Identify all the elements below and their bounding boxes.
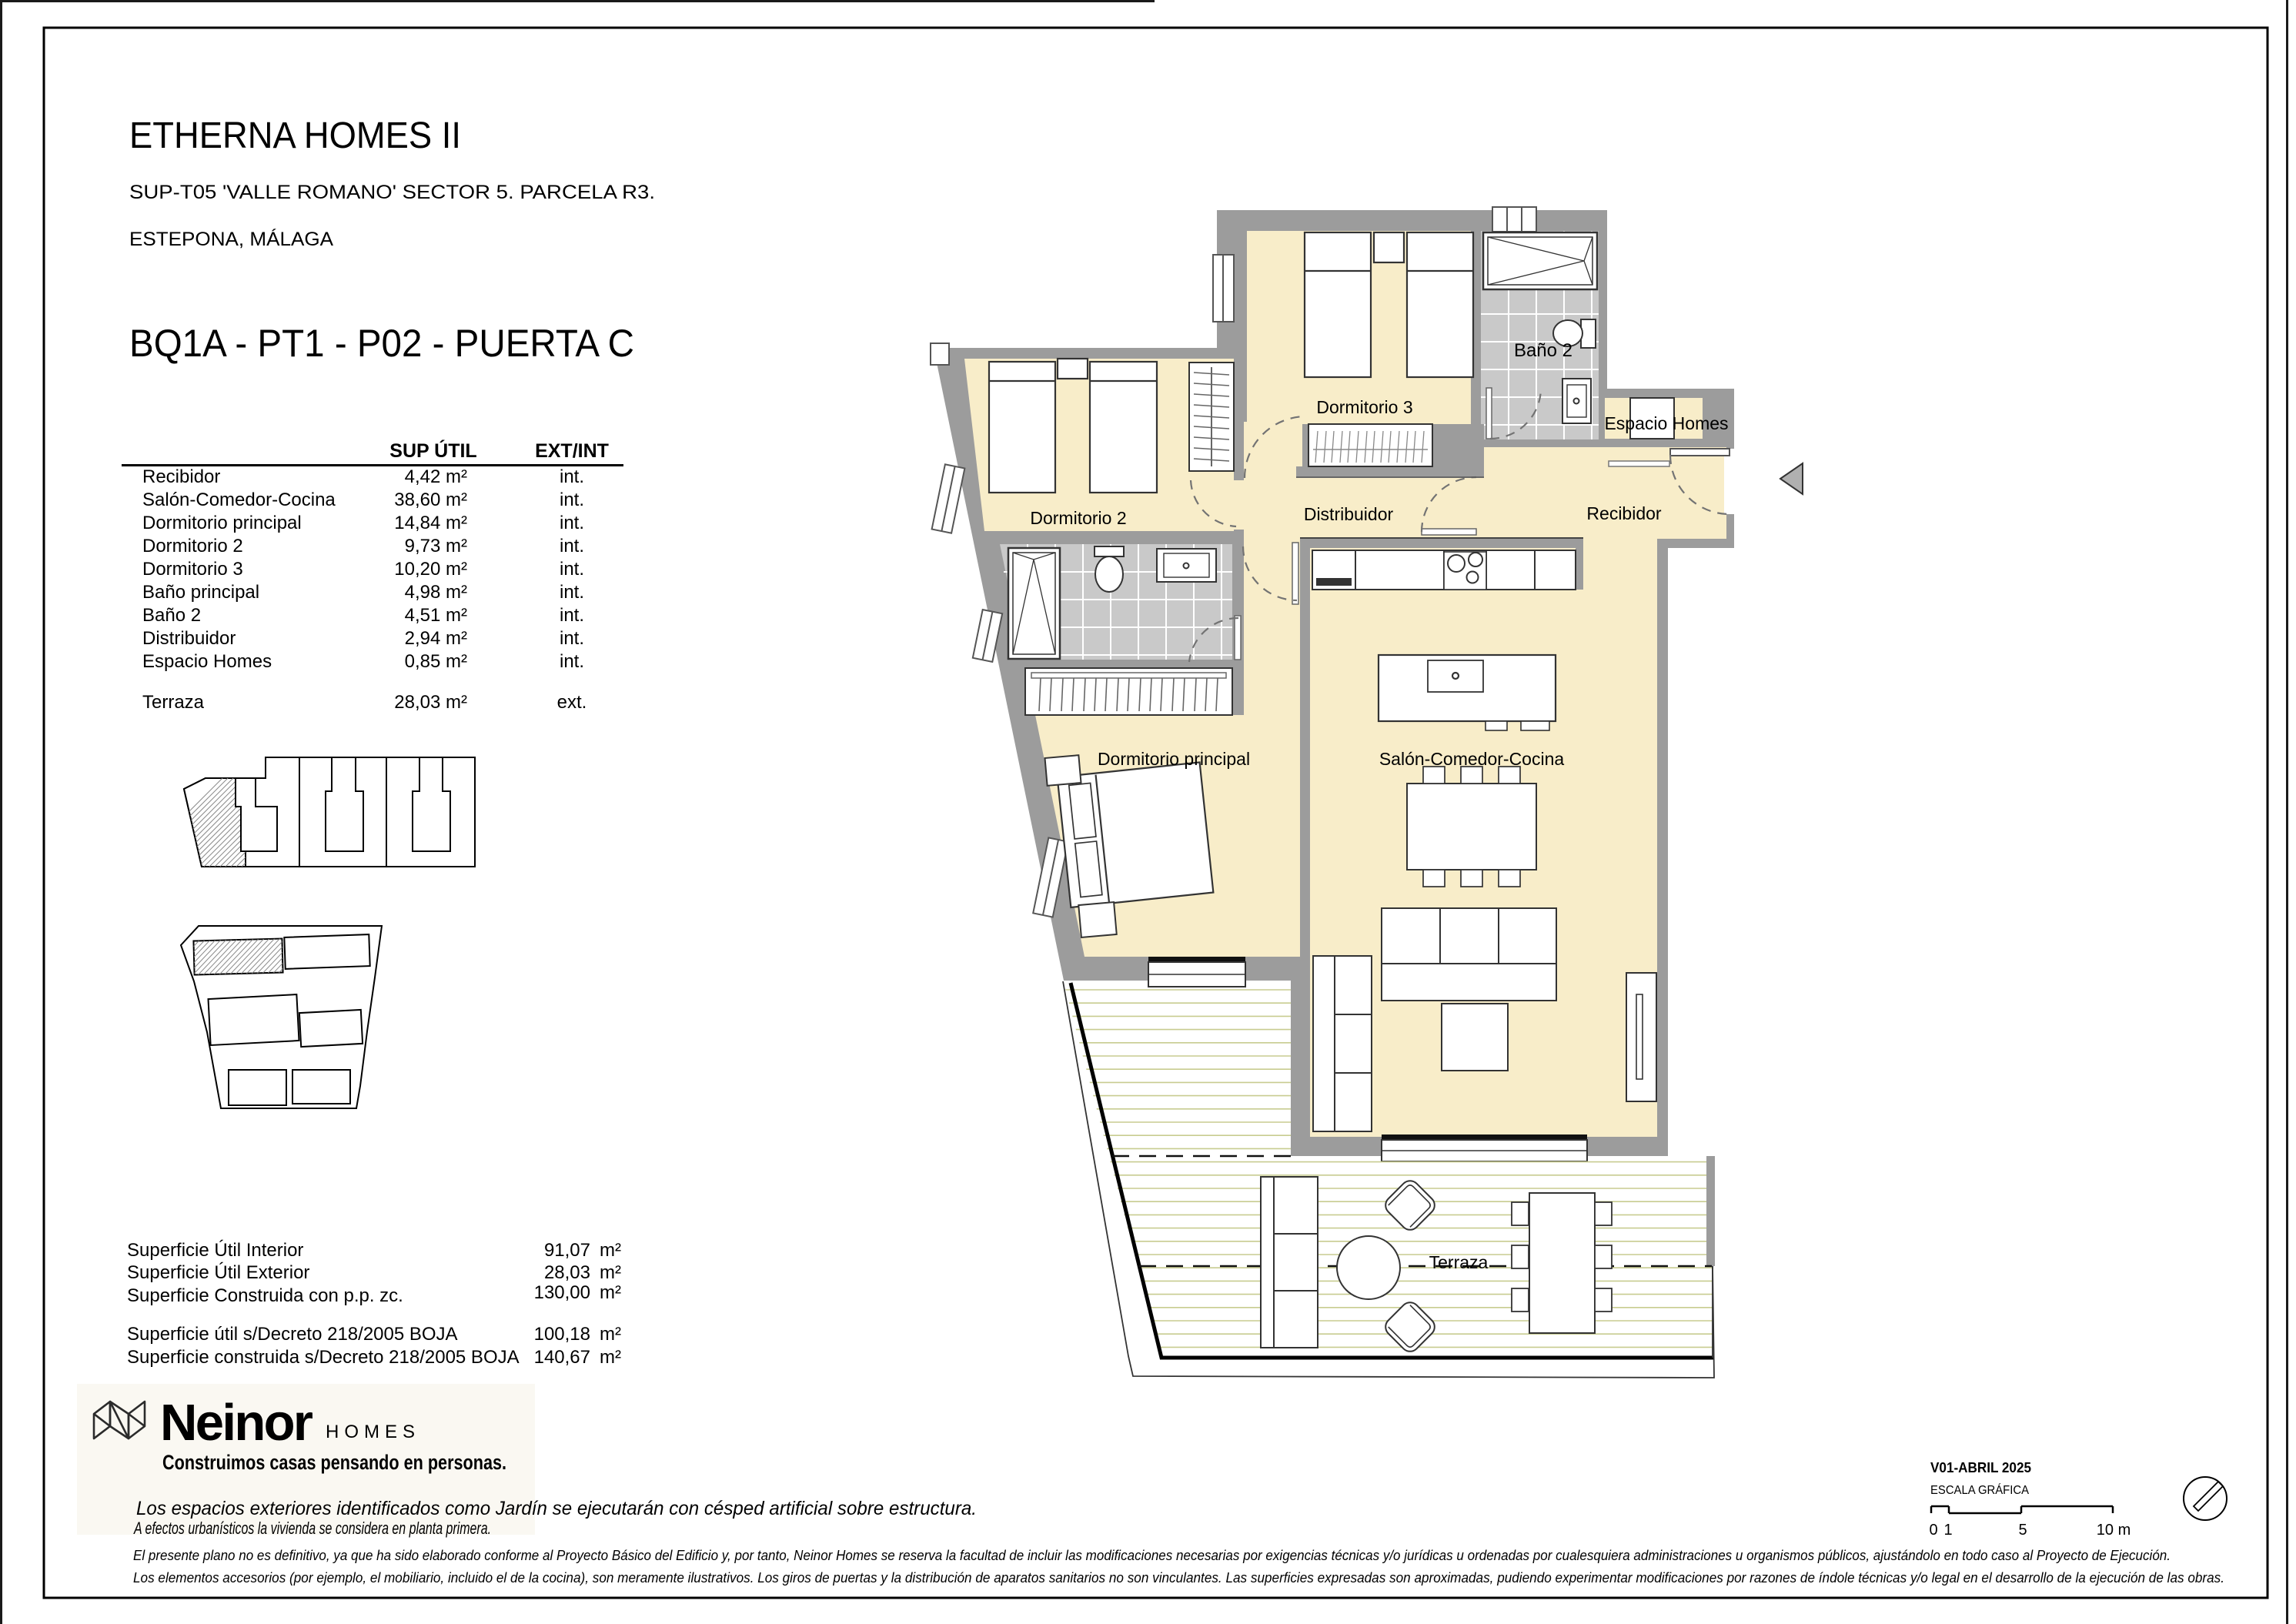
svg-text:int.: int. — [560, 559, 584, 580]
svg-text:V01-ABRIL 2025: V01-ABRIL 2025 — [1930, 1460, 2031, 1475]
svg-text:10 m: 10 m — [2097, 1522, 2131, 1539]
svg-text:int.: int. — [560, 490, 584, 510]
svg-text:SUP ÚTIL: SUP ÚTIL — [389, 439, 476, 462]
svg-text:Neinor: Neinor — [160, 1394, 313, 1452]
svg-text:Baño principal: Baño principal — [142, 582, 259, 603]
svg-text:Dormitorio 3: Dormitorio 3 — [1316, 397, 1412, 417]
svg-text:5: 5 — [2018, 1522, 2027, 1539]
svg-text:38,60 m²: 38,60 m² — [394, 490, 467, 510]
svg-text:130,00: 130,00 — [534, 1282, 590, 1303]
svg-text:Superficie construida s/Decret: Superficie construida s/Decreto 218/2005… — [127, 1347, 520, 1368]
svg-text:2,94 m²: 2,94 m² — [405, 628, 467, 649]
svg-text:Construimos casas pensando en: Construimos casas pensando en personas. — [162, 1451, 506, 1474]
svg-text:Dormitorio 3: Dormitorio 3 — [142, 559, 243, 580]
svg-text:0,85 m²: 0,85 m² — [405, 651, 467, 672]
svg-text:Salón-Comedor-Cocina: Salón-Comedor-Cocina — [1379, 749, 1565, 769]
svg-text:EXT/INT: EXT/INT — [535, 440, 609, 462]
svg-text:Terraza: Terraza — [1429, 1252, 1489, 1272]
svg-text:Distribuidor: Distribuidor — [142, 628, 236, 649]
svg-text:A efectos urbanísticos la vivi: A efectos urbanísticos la vivienda se co… — [133, 1519, 491, 1538]
svg-text:Baño 2: Baño 2 — [1514, 340, 1572, 361]
svg-text:int.: int. — [560, 651, 584, 672]
svg-text:SUP-T05 'VALLE ROMANO' SECTOR: SUP-T05 'VALLE ROMANO' SECTOR 5. PARCELA… — [129, 182, 655, 203]
svg-text:Dormitorio principal: Dormitorio principal — [1098, 749, 1250, 769]
svg-text:100,18: 100,18 — [534, 1324, 590, 1345]
svg-text:4,51 m²: 4,51 m² — [405, 605, 467, 626]
svg-text:BQ1A - PT1 - P02 - PUERTA C: BQ1A - PT1 - P02 - PUERTA C — [129, 322, 634, 365]
svg-text:0: 0 — [1929, 1522, 1937, 1539]
svg-text:Superficie Útil Exterior: Superficie Útil Exterior — [127, 1262, 309, 1283]
svg-text:m²: m² — [600, 1262, 621, 1283]
svg-text:4,42 m²: 4,42 m² — [405, 466, 467, 487]
svg-text:14,84 m²: 14,84 m² — [394, 513, 467, 533]
svg-text:int.: int. — [560, 628, 584, 649]
svg-text:28,03 m²: 28,03 m² — [394, 692, 467, 713]
svg-text:m²: m² — [600, 1324, 621, 1345]
svg-text:4,98 m²: 4,98 m² — [405, 582, 467, 603]
svg-text:ESTEPONA, MÁLAGA: ESTEPONA, MÁLAGA — [129, 228, 333, 250]
svg-text:Espacio Homes: Espacio Homes — [142, 651, 272, 672]
svg-text:Dormitorio 2: Dormitorio 2 — [1030, 508, 1126, 528]
svg-text:El presente plano no es defini: El presente plano no es definitivo, ya q… — [133, 1548, 2171, 1563]
svg-text:Terraza: Terraza — [142, 692, 205, 713]
svg-text:Recibidor: Recibidor — [142, 466, 220, 487]
svg-text:HOMES: HOMES — [326, 1422, 420, 1442]
svg-text:Espacio Homes: Espacio Homes — [1604, 413, 1728, 433]
svg-text:Los elementos accesorios (por: Los elementos accesorios (por ejemplo, e… — [133, 1570, 2224, 1586]
svg-text:91,07: 91,07 — [544, 1240, 590, 1261]
svg-text:Dormitorio 2: Dormitorio 2 — [142, 536, 243, 556]
svg-text:28,03: 28,03 — [544, 1262, 590, 1283]
svg-text:m²: m² — [600, 1347, 621, 1368]
svg-text:Distribuidor: Distribuidor — [1304, 504, 1394, 524]
svg-text:Baño 2: Baño 2 — [142, 605, 201, 626]
svg-text:ETHERNA HOMES II: ETHERNA HOMES II — [129, 115, 461, 156]
svg-text:m²: m² — [600, 1240, 621, 1261]
svg-text:ext.: ext. — [557, 692, 587, 713]
svg-text:m²: m² — [600, 1282, 621, 1303]
svg-text:Superficie útil s/Decreto 218/: Superficie útil s/Decreto 218/2005 BOJA — [127, 1324, 458, 1345]
svg-text:1: 1 — [1943, 1522, 1952, 1539]
svg-text:int.: int. — [560, 605, 584, 626]
svg-text:int.: int. — [560, 536, 584, 556]
svg-text:Los espacios exteriores identi: Los espacios exteriores identificados co… — [136, 1498, 977, 1519]
svg-text:Superficie Construida con p.p.: Superficie Construida con p.p. zc. — [127, 1285, 403, 1306]
svg-text:9,73 m²: 9,73 m² — [405, 536, 467, 556]
svg-text:140,67: 140,67 — [534, 1347, 590, 1368]
svg-text:int.: int. — [560, 466, 584, 487]
svg-text:10,20 m²: 10,20 m² — [394, 559, 467, 580]
svg-text:Recibidor: Recibidor — [1586, 503, 1661, 523]
svg-text:Salón-Comedor-Cocina: Salón-Comedor-Cocina — [142, 490, 336, 510]
svg-text:int.: int. — [560, 513, 584, 533]
svg-text:ESCALA GRÁFICA: ESCALA GRÁFICA — [1930, 1482, 2029, 1497]
svg-text:int.: int. — [560, 582, 584, 603]
svg-text:Dormitorio principal: Dormitorio principal — [142, 513, 302, 533]
svg-text:Superficie Útil Interior: Superficie Útil Interior — [127, 1240, 303, 1261]
